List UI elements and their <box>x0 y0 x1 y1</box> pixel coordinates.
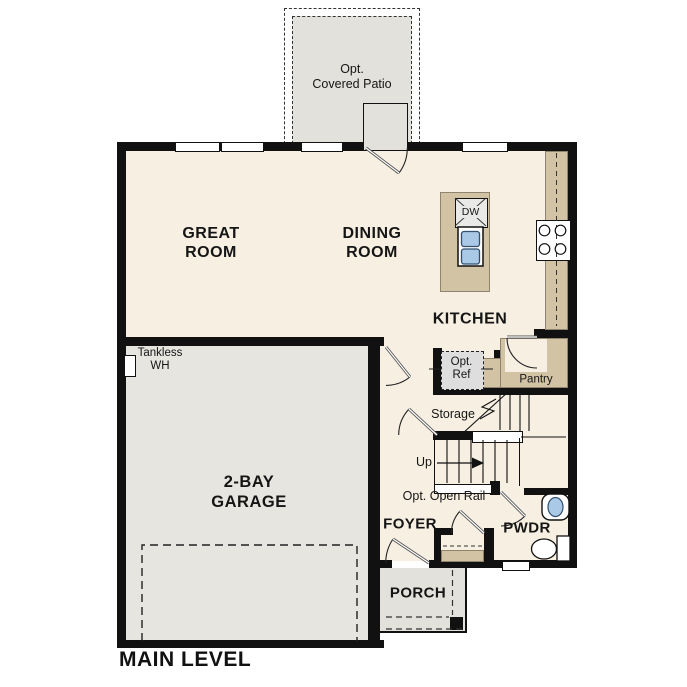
patio-label: Opt. Covered Patio <box>312 62 391 92</box>
pantry-door <box>507 337 537 368</box>
patio-label-line2: Covered Patio <box>312 77 391 91</box>
foyer-label: FOYER <box>383 516 437 533</box>
toilet-icon <box>532 536 571 561</box>
main-level-title: MAIN LEVEL <box>119 648 251 672</box>
dishwasher-label: DW <box>461 206 481 218</box>
garage-door-dashed <box>142 545 357 641</box>
powder-sink-icon <box>542 494 569 520</box>
up-arrow <box>437 458 484 469</box>
tankless-wh-label: Tankless WH <box>138 347 183 373</box>
great-room-label: GREAT ROOM <box>182 224 239 262</box>
patio-label-line1: Opt. <box>340 62 364 76</box>
garage-entry-door <box>386 347 410 385</box>
floor-plan: Opt. Covered Patio GREAT ROOM DINING ROO… <box>0 0 687 687</box>
opt-ref-label: Opt. Ref <box>451 356 473 382</box>
closet-door <box>451 511 484 533</box>
storage-label: Storage <box>431 407 475 421</box>
dining-room-label: DINING ROOM <box>343 224 402 262</box>
porch-label: PORCH <box>390 585 446 602</box>
stove-burners-icon <box>539 225 566 254</box>
open-rail-label: Opt. Open Rail <box>403 489 486 503</box>
pantry-label: Pantry <box>519 374 552 387</box>
front-door <box>386 539 429 563</box>
up-label: Up <box>416 455 432 469</box>
kitchen-sink-icon <box>458 227 483 266</box>
plan-linework <box>0 0 687 687</box>
kitchen-label: KITCHEN <box>433 310 508 329</box>
garage-label: 2-BAY GARAGE <box>211 472 286 512</box>
pwdr-label: PWDR <box>503 520 550 537</box>
patio-door <box>366 148 407 173</box>
